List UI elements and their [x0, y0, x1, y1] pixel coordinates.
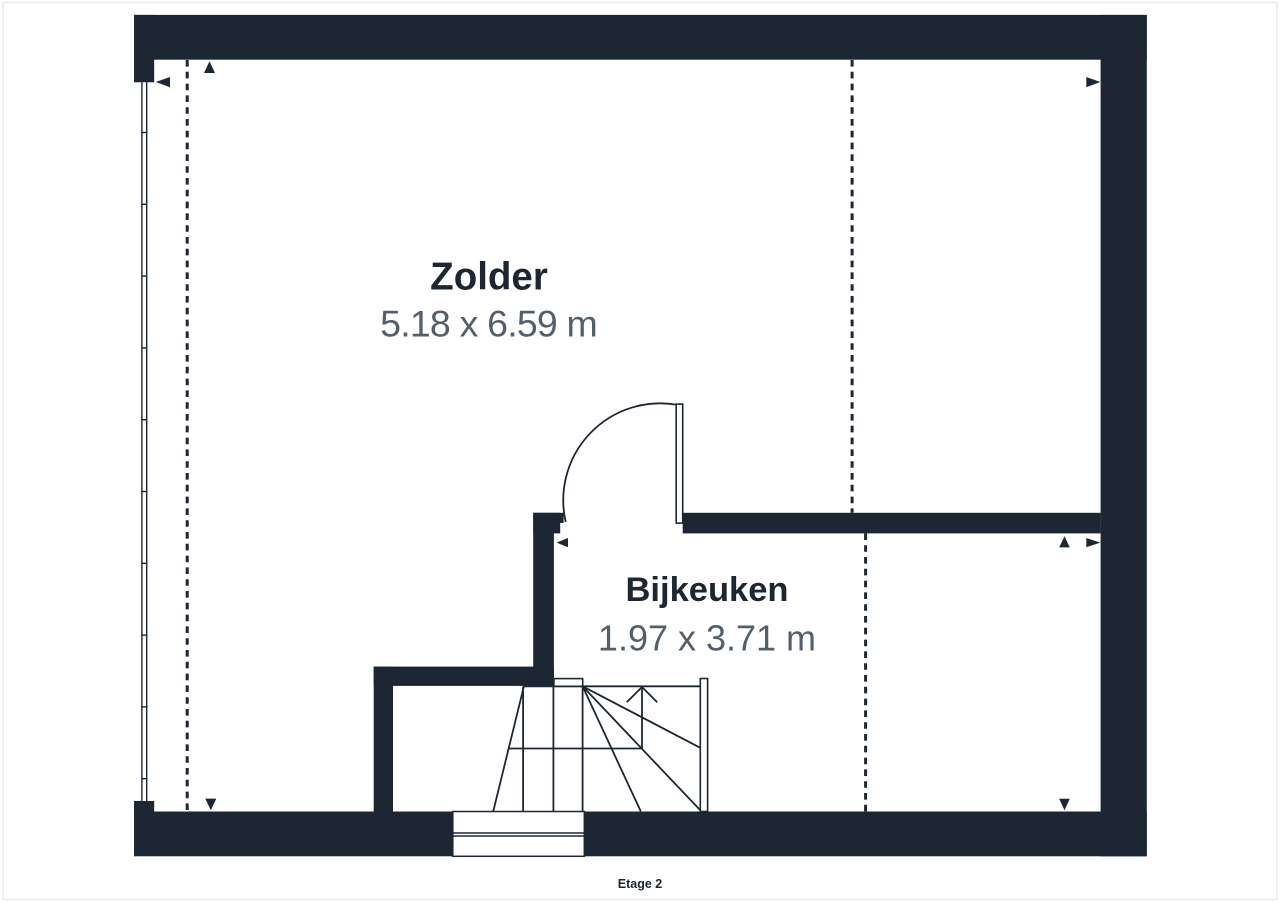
svg-text:Etage 2: Etage 2 — [618, 877, 663, 891]
svg-text:Zolder: Zolder — [430, 256, 548, 299]
svg-text:1.97 x 3.71 m: 1.97 x 3.71 m — [598, 618, 816, 659]
svg-text:Bijkeuken: Bijkeuken — [626, 571, 789, 609]
svg-text:5.18 x 6.59 m: 5.18 x 6.59 m — [380, 303, 597, 345]
